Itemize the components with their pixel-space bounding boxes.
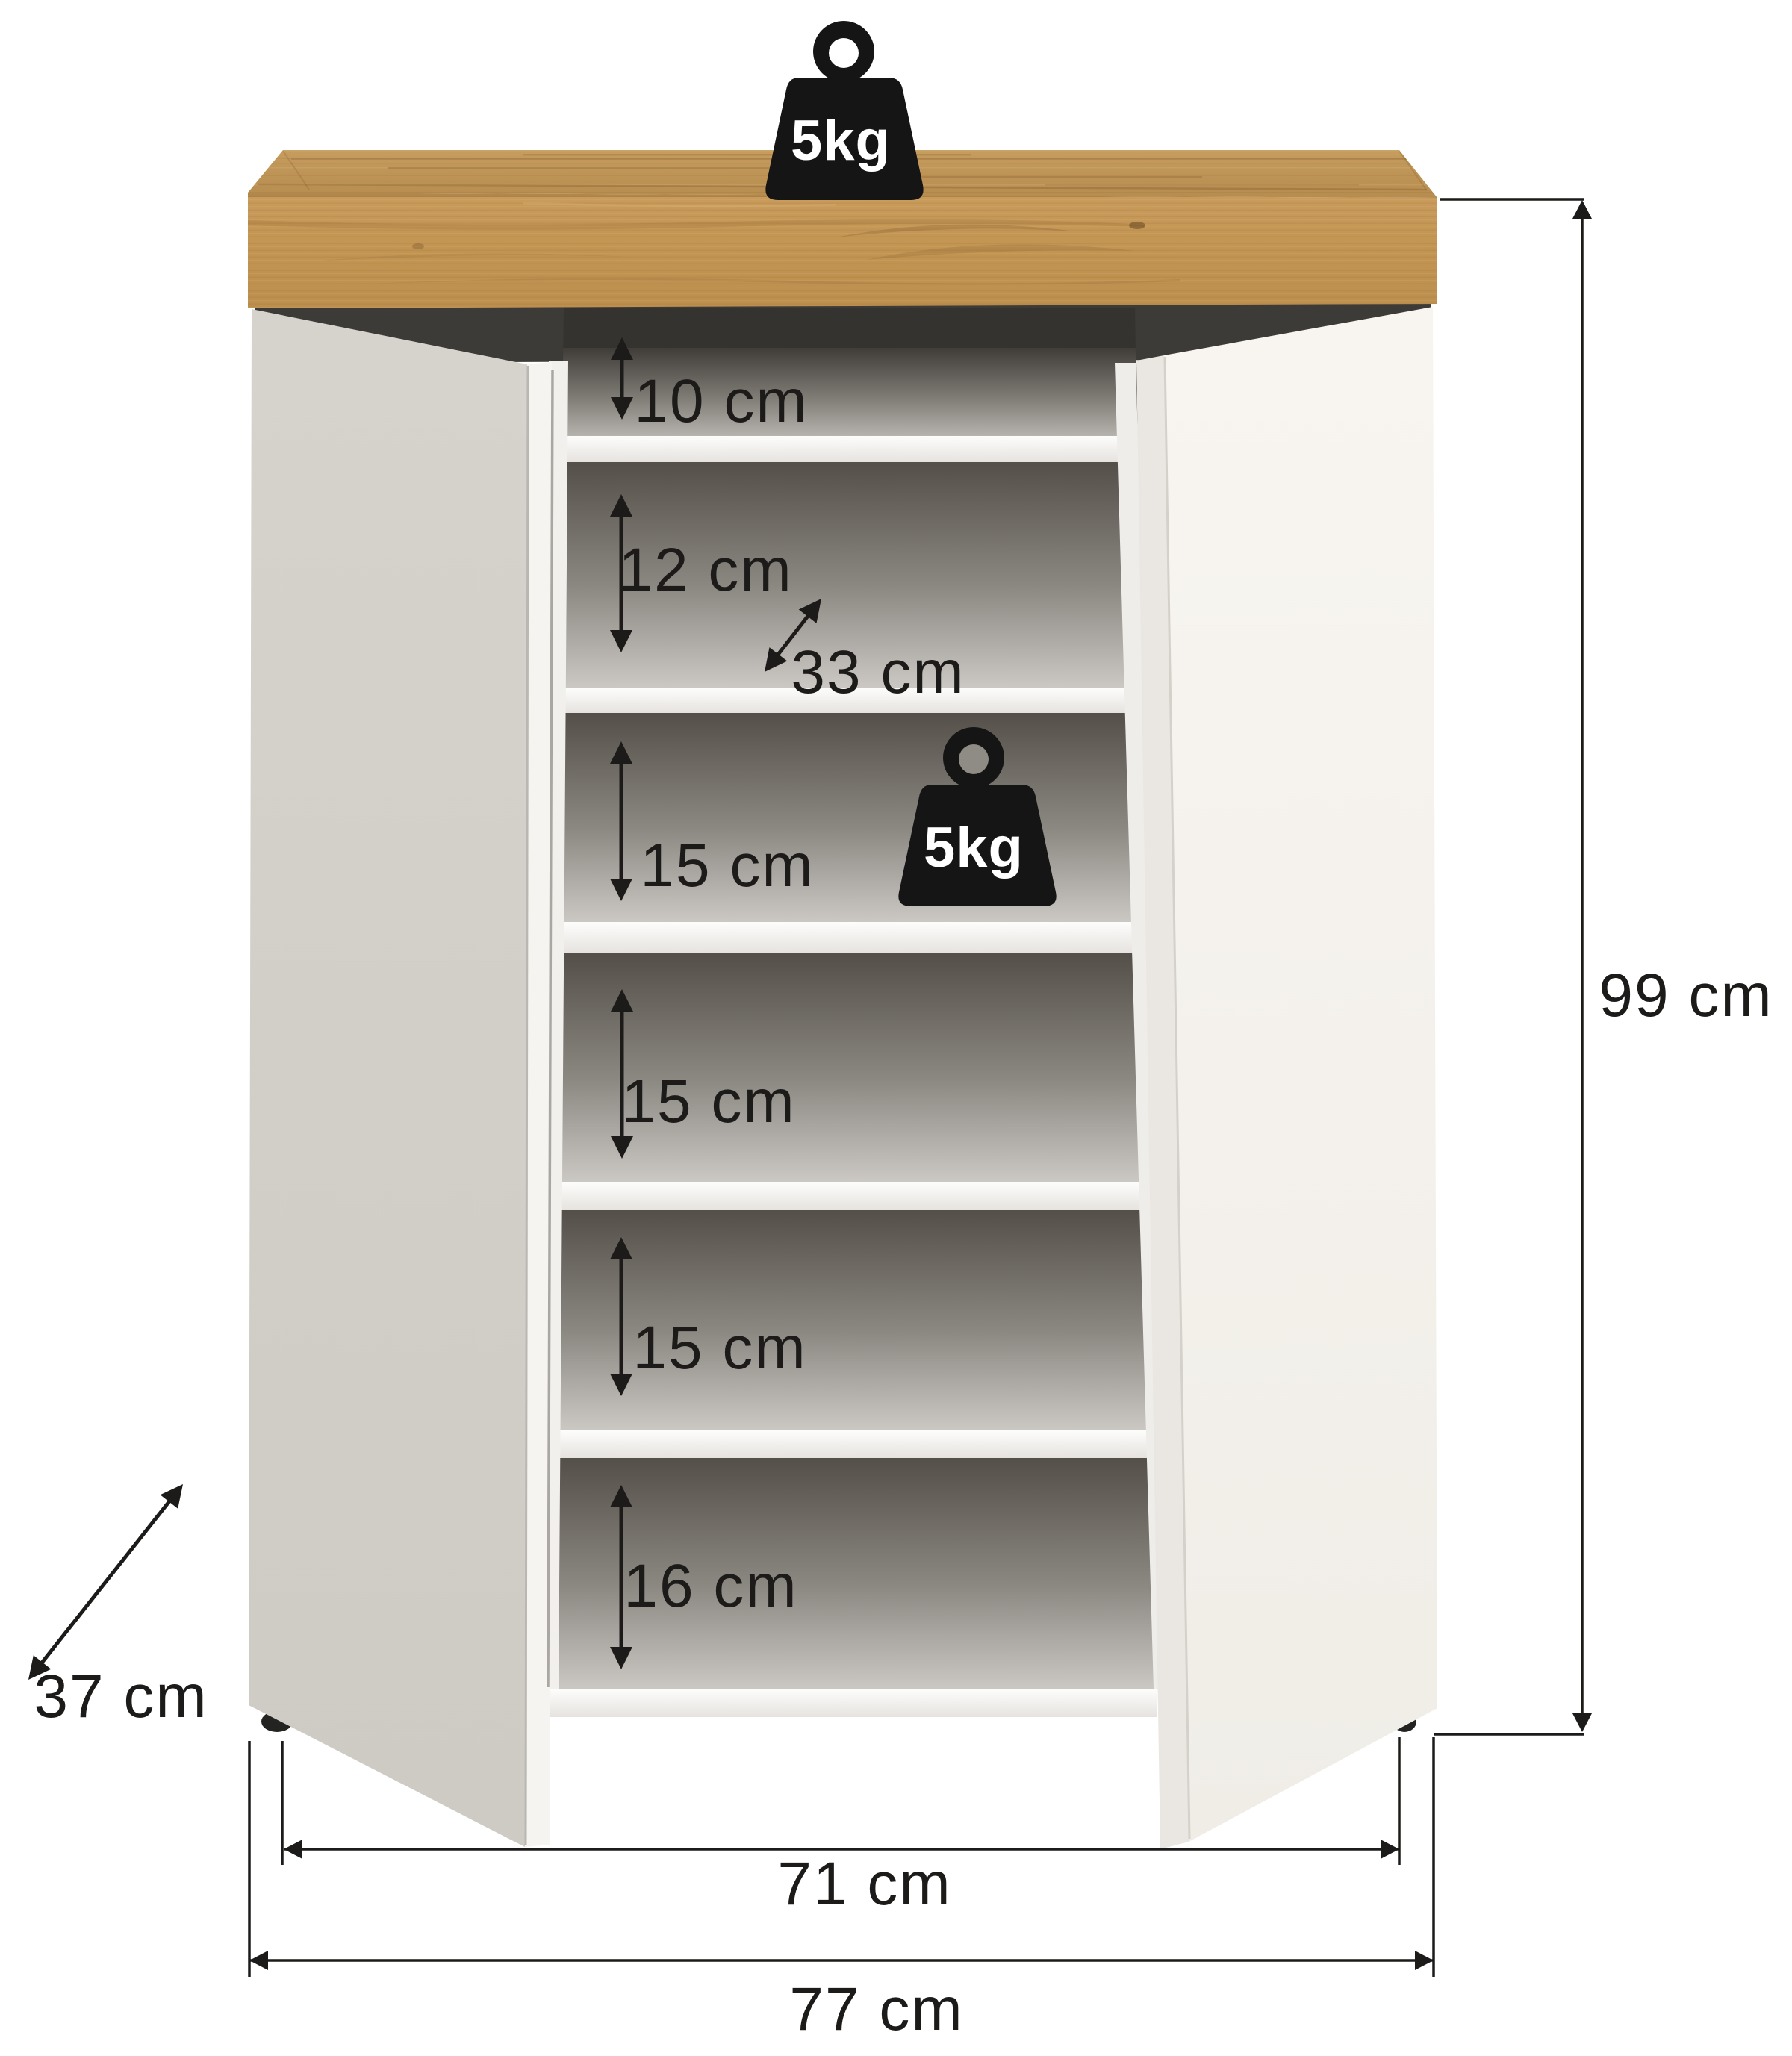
- svg-text:5kg: 5kg: [924, 816, 1024, 879]
- svg-text:12 cm: 12 cm: [618, 536, 792, 604]
- svg-text:77 cm: 77 cm: [789, 1975, 963, 2043]
- svg-text:16 cm: 16 cm: [623, 1552, 797, 1620]
- svg-text:15 cm: 15 cm: [632, 1314, 806, 1382]
- svg-text:33 cm: 33 cm: [791, 638, 965, 706]
- svg-text:15 cm: 15 cm: [640, 832, 814, 900]
- svg-text:5kg: 5kg: [791, 109, 891, 172]
- svg-text:99 cm: 99 cm: [1599, 962, 1773, 1029]
- svg-text:10 cm: 10 cm: [634, 367, 808, 435]
- svg-text:71 cm: 71 cm: [777, 1850, 951, 1918]
- svg-text:37 cm: 37 cm: [34, 1663, 208, 1731]
- svg-text:15 cm: 15 cm: [621, 1068, 795, 1136]
